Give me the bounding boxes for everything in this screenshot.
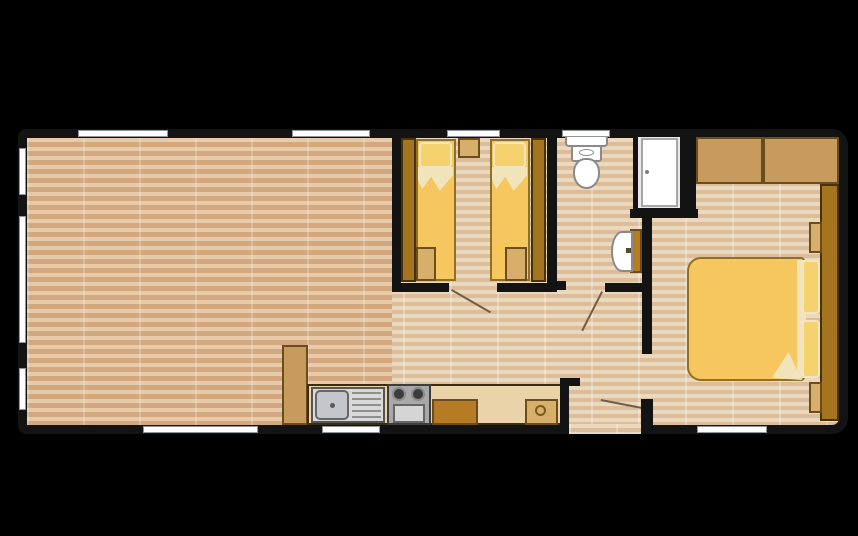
master-bedside-shelf-upper	[809, 222, 822, 253]
double-bed-pillow-upper	[802, 260, 820, 314]
oven-door	[393, 404, 425, 423]
basin-drain	[626, 248, 631, 253]
wall-entrance-vestibule-vertical	[560, 378, 569, 434]
main-entrance-opening	[569, 424, 641, 434]
wall-shower-bedroom-divider	[684, 129, 696, 218]
floorplan-canvas	[0, 0, 858, 536]
wall-showerroom-bottom-left	[547, 281, 566, 290]
wall-twin-bedroom-right	[547, 129, 557, 290]
wall-bedroom-door-jamb	[641, 399, 653, 434]
window-bottom-master-bedroom	[697, 426, 767, 433]
appliance-round-hatch	[535, 405, 546, 416]
twin-bedside-unit	[458, 138, 480, 158]
hob-burner-left	[392, 387, 406, 401]
toilet-flush-button	[579, 149, 594, 156]
window-top-showerroom	[562, 130, 610, 137]
window-top-living-2	[292, 130, 370, 137]
double-bed-pillow-lower	[802, 320, 820, 378]
master-overhead-cabinet-left	[696, 137, 763, 184]
twin-wardrobe-right	[531, 138, 546, 282]
kitchen-tall-cabinet	[282, 345, 308, 425]
master-bedside-shelf-lower	[809, 382, 822, 413]
wall-twin-bedroom-left	[392, 129, 401, 292]
window-top-twin-bedroom	[447, 130, 500, 137]
sink-drainer	[352, 392, 381, 419]
single-bed-left-pillow	[419, 142, 452, 168]
toilet-bowl	[573, 158, 600, 189]
hob-burner-right	[411, 387, 425, 401]
single-bed-right-pillow	[493, 142, 526, 168]
sink-drain-dot	[330, 403, 335, 408]
living-area-floor	[27, 138, 392, 425]
single-bed-left-foot-box	[416, 247, 436, 281]
wall-hall-bedroom-divider	[642, 209, 652, 354]
wall-entrance-vestibule-return	[560, 378, 580, 386]
window-bottom-living	[143, 426, 258, 433]
window-left-upper	[19, 148, 26, 195]
single-bed-right-foot-box	[505, 247, 527, 281]
window-left-middle	[19, 216, 26, 343]
master-overhead-cabinet-right	[763, 137, 839, 184]
window-bottom-kitchen	[322, 426, 380, 433]
master-wardrobe	[820, 184, 839, 421]
window-left-lower	[19, 368, 26, 410]
shower-door-handle	[645, 170, 649, 174]
twin-wardrobe-left	[401, 138, 416, 282]
window-top-living-1	[78, 130, 168, 137]
kitchen-base-cabinet	[432, 399, 478, 425]
wall-twin-bedroom-bottom-left	[392, 283, 449, 292]
